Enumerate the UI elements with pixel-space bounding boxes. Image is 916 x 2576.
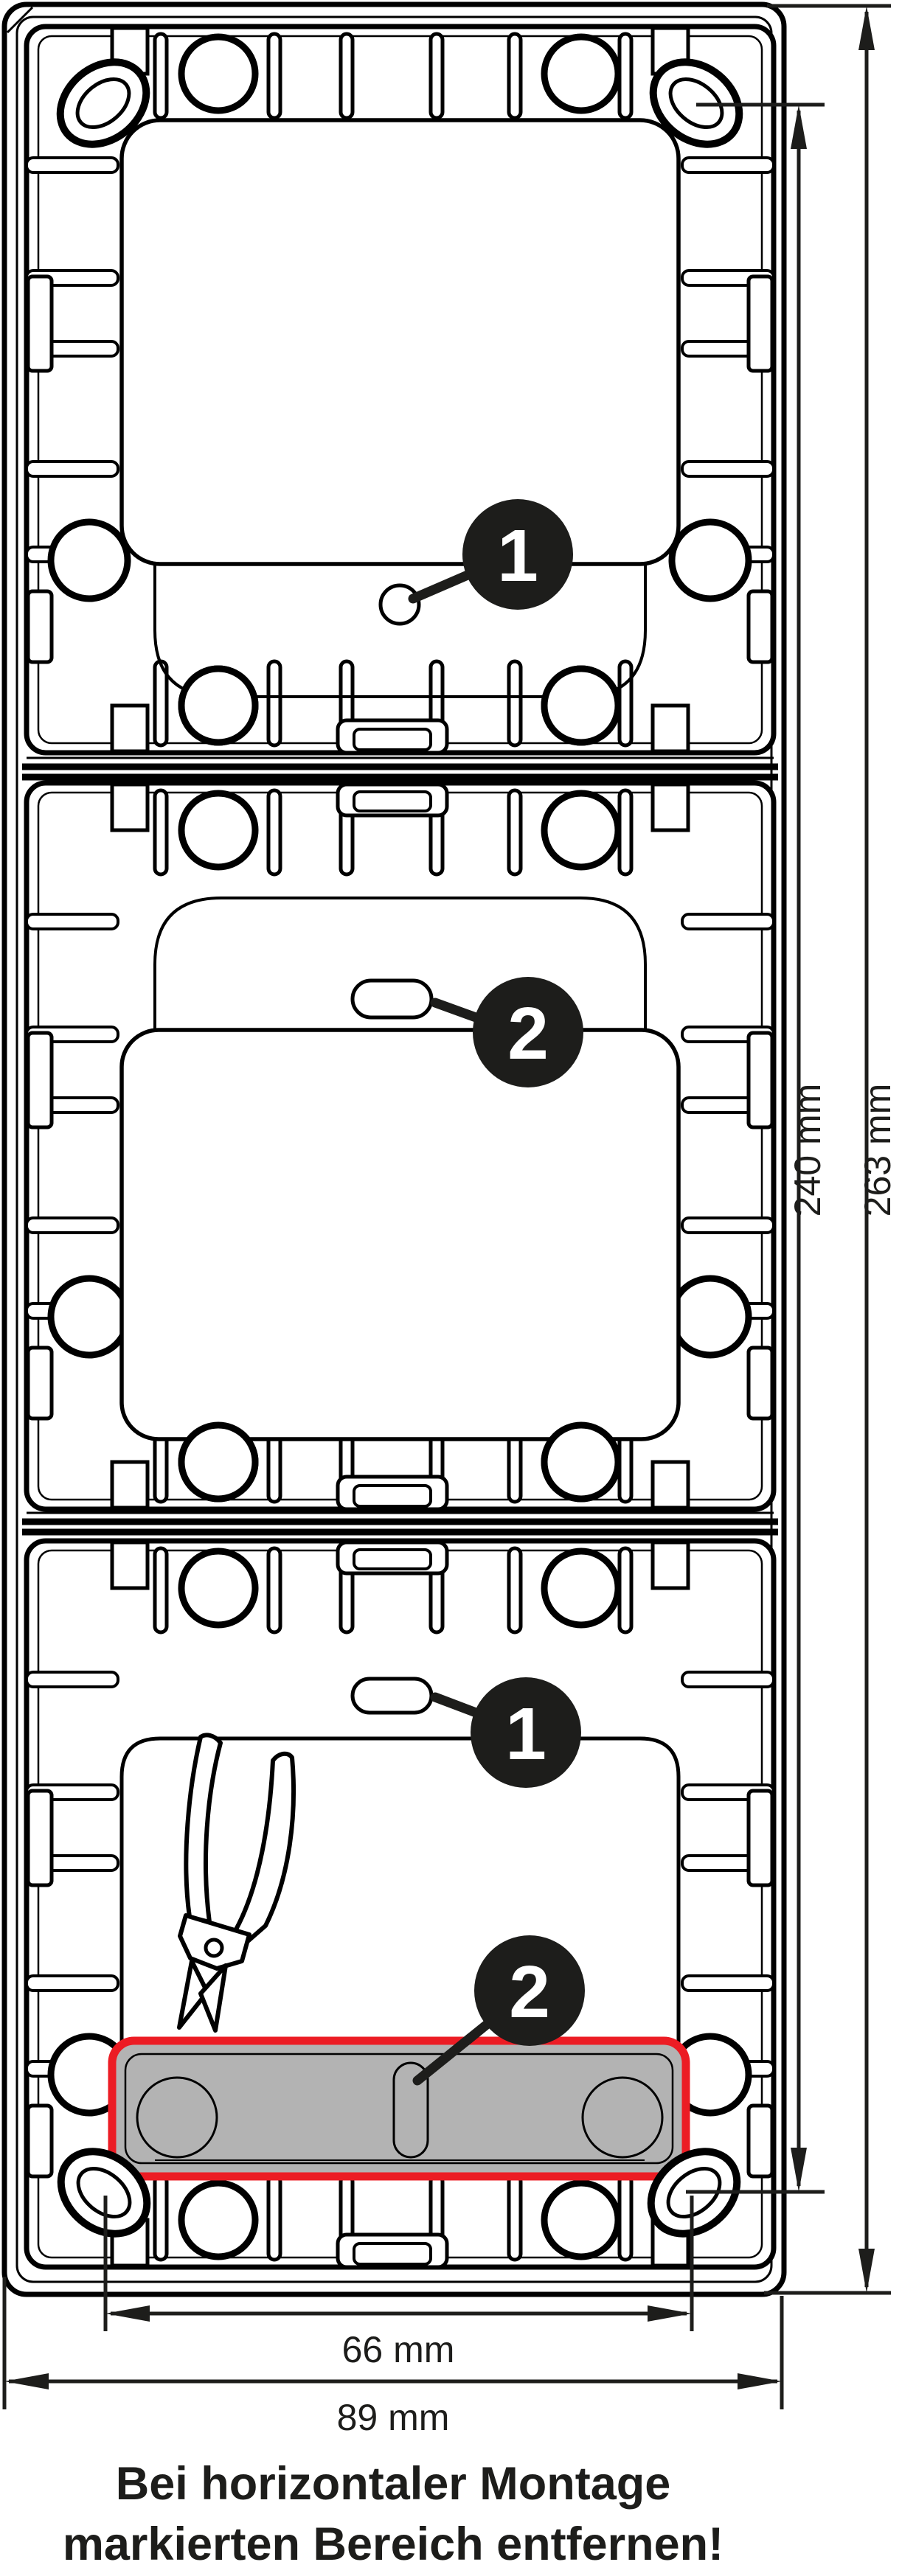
caption: Bei horizontaler Montage markierten Bere… bbox=[63, 2458, 724, 2570]
frame-section-bottom bbox=[27, 1541, 774, 2267]
frame-section-top bbox=[27, 27, 774, 753]
marked-removal-area bbox=[112, 2041, 686, 2176]
module-opening-top bbox=[122, 120, 679, 564]
breakout-slot-bottom bbox=[353, 1679, 431, 1713]
breakout-slot-middle bbox=[353, 981, 431, 1017]
frame-section-middle bbox=[27, 783, 774, 1509]
diagram-page: 1 2 1 2 240 mm 263 mm 66 mm bbox=[0, 0, 916, 2576]
callout-number: 1 bbox=[505, 1693, 547, 1775]
fixing-hole-top bbox=[381, 585, 419, 624]
callout-number: 2 bbox=[509, 1951, 550, 2033]
callout-number: 1 bbox=[497, 515, 538, 597]
callout-number: 2 bbox=[507, 992, 549, 1075]
dimension-label-240: 240 mm bbox=[787, 1084, 828, 1217]
caption-line-2: markierten Bereich entfernen! bbox=[63, 2518, 724, 2570]
module-opening-middle bbox=[122, 1030, 679, 1439]
mounting-frame-diagram: 1 2 1 2 240 mm 263 mm 66 mm bbox=[0, 0, 916, 2576]
caption-line-1: Bei horizontaler Montage bbox=[116, 2458, 671, 2510]
dimension-label-263: 263 mm bbox=[857, 1084, 898, 1217]
dimension-label-89: 89 mm bbox=[337, 2397, 450, 2438]
dimension-label-66: 66 mm bbox=[342, 2329, 455, 2370]
